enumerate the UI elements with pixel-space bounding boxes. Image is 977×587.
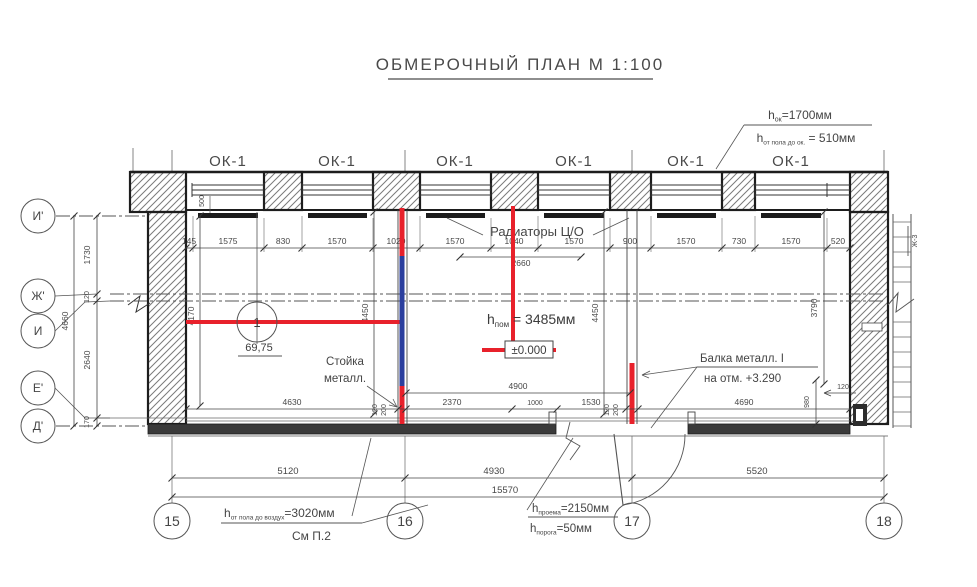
zero-mark: ±0.000 bbox=[511, 345, 546, 357]
dim: 4450 bbox=[360, 303, 370, 322]
dim: 4900 bbox=[509, 381, 528, 391]
dim: 145 bbox=[182, 236, 196, 246]
left-wall bbox=[148, 212, 186, 424]
dim: 1000 bbox=[527, 400, 543, 407]
dim: 980 bbox=[804, 396, 811, 408]
axis-label: Ж' bbox=[31, 289, 44, 303]
dim: 1575 bbox=[219, 236, 238, 246]
mark-elevation: 69,75 bbox=[245, 342, 273, 354]
right-wall bbox=[850, 212, 888, 424]
beam-label-1: Балка металл. I bbox=[700, 353, 784, 365]
dim: 1570 bbox=[446, 236, 465, 246]
dim: 4660 bbox=[60, 311, 70, 330]
dim: 4630 bbox=[283, 397, 302, 407]
dim: 1530 bbox=[582, 397, 601, 407]
dim: 1570 bbox=[677, 236, 696, 246]
dim: 1570 bbox=[782, 236, 801, 246]
bottom-wall-left bbox=[148, 424, 556, 434]
dim: 830 bbox=[276, 236, 290, 246]
dim: 120 bbox=[837, 384, 849, 391]
dim: 1570 bbox=[328, 236, 347, 246]
dim: 1570 bbox=[565, 236, 584, 246]
dim: 730 bbox=[732, 236, 746, 246]
dim: 4690 bbox=[735, 397, 754, 407]
window-label: ОК-1 bbox=[436, 153, 474, 170]
axis-label: И' bbox=[33, 209, 44, 223]
post-label-2: металл. bbox=[324, 373, 366, 385]
dim: 4930 bbox=[483, 466, 504, 477]
dim: 500 bbox=[199, 195, 206, 207]
window-label: ОК-1 bbox=[318, 153, 356, 170]
ladder-label: Ж-3 bbox=[912, 235, 919, 248]
axis-label: Д' bbox=[33, 419, 43, 433]
dim: 3790 bbox=[809, 298, 819, 317]
dim: 520 bbox=[831, 236, 845, 246]
dim: 2640 bbox=[82, 350, 92, 369]
axis-label: 17 bbox=[624, 513, 640, 529]
dim: 120 bbox=[84, 291, 91, 303]
window-label: ОК-1 bbox=[772, 153, 810, 170]
dim: 200 bbox=[613, 404, 620, 416]
dim: 4450 bbox=[590, 303, 600, 322]
dim: 200 bbox=[381, 404, 388, 416]
dim: 120 bbox=[604, 404, 611, 416]
axis-label: 15 bbox=[164, 513, 180, 529]
dim: 1730 bbox=[82, 245, 92, 264]
window-label: ОК-1 bbox=[209, 153, 247, 170]
measurement-plan-page: ОБМЕРОЧНЫЙ ПЛАН М 1:100 hок=1700мм hот п… bbox=[0, 0, 977, 587]
beam-label-2: на отм. +3.290 bbox=[704, 373, 781, 385]
window-label: ОК-1 bbox=[555, 153, 593, 170]
bottom-wall-right bbox=[688, 424, 850, 434]
dim: 5520 bbox=[746, 466, 767, 477]
wall-niche bbox=[862, 323, 882, 331]
dim: 5120 bbox=[277, 466, 298, 477]
dim: 120 bbox=[372, 404, 379, 416]
post-label-1: Стойка bbox=[326, 356, 365, 368]
dim: 900 bbox=[623, 236, 637, 246]
mark-number: 1 bbox=[253, 315, 260, 330]
plan-drawing: ОБМЕРОЧНЫЙ ПЛАН М 1:100 hок=1700мм hот п… bbox=[0, 0, 977, 587]
page-title: ОБМЕРОЧНЫЙ ПЛАН М 1:100 bbox=[376, 55, 664, 74]
window-label: ОК-1 bbox=[667, 153, 705, 170]
dim: 2370 bbox=[443, 397, 462, 407]
axis-label: 16 bbox=[397, 513, 413, 529]
axis-label: 18 bbox=[876, 513, 892, 529]
axis-label: Е' bbox=[33, 381, 43, 395]
see-note: См П.2 bbox=[292, 529, 331, 543]
dim: 170 bbox=[84, 416, 91, 428]
axis-label: И bbox=[34, 324, 43, 338]
dim: 15570 bbox=[492, 485, 518, 496]
